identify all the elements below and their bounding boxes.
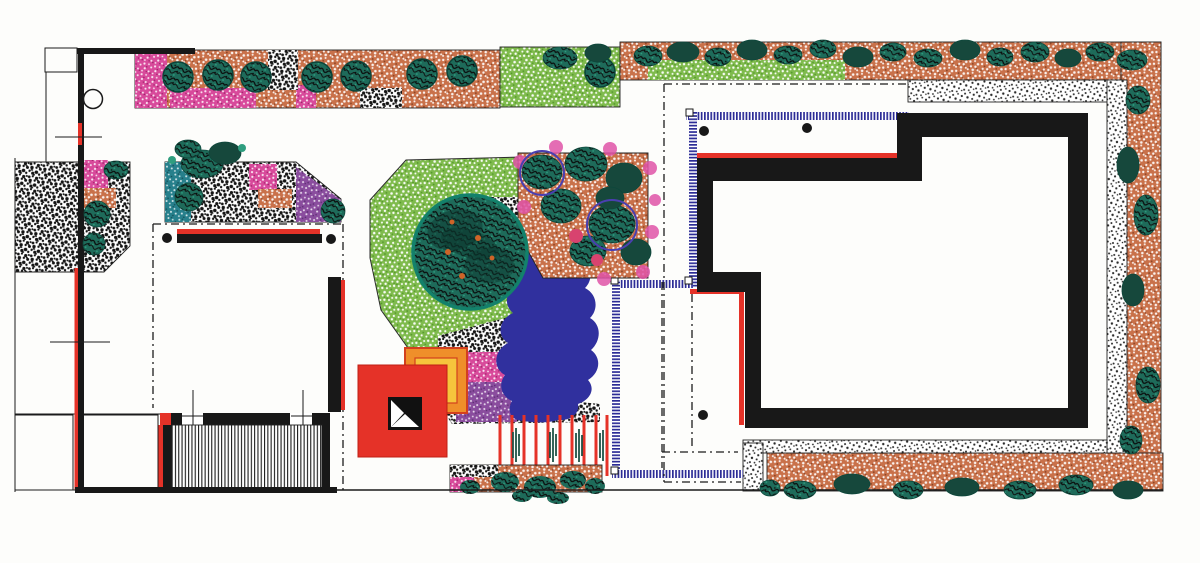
veranda-edge-top — [686, 112, 909, 120]
border-green-strip — [648, 60, 845, 80]
courtyard-edge-top — [612, 280, 693, 288]
garden-plan-drawing — [0, 0, 1200, 563]
pyramid-feature — [388, 397, 422, 430]
pergola-beam-red — [177, 229, 320, 234]
border-magenta-patch — [135, 50, 167, 108]
deck-side-wall — [163, 425, 172, 490]
garden-wall — [328, 277, 341, 412]
pergola-post — [162, 233, 172, 243]
border-dark-patch — [268, 50, 298, 90]
spine-wall-red-mark — [78, 123, 82, 145]
deck-side-red — [158, 425, 163, 490]
column-marker — [84, 90, 103, 109]
deck-side-wall — [322, 425, 330, 490]
veranda-red-edge — [697, 153, 907, 158]
veranda-post — [699, 126, 709, 136]
garden-plan-canvas — [0, 0, 1200, 563]
pergola-post — [326, 234, 336, 244]
garden-wall-red-face — [341, 280, 345, 410]
spine-wall — [78, 48, 84, 492]
top-boundary-wall — [77, 48, 195, 54]
spine-wall-red-face — [75, 268, 79, 490]
veranda-post — [802, 123, 812, 133]
south-boundary-wall — [75, 487, 337, 493]
courtyard-edge-bottom — [612, 470, 743, 478]
veranda-edge-left — [689, 112, 697, 287]
flower-dab — [569, 229, 583, 243]
flower-dab — [591, 254, 603, 266]
courtyard-red-edge — [739, 289, 744, 425]
specimen-tree — [413, 195, 527, 309]
courtyard-post — [698, 410, 708, 420]
deck-edge-red-cap — [160, 413, 171, 427]
pergola-beam — [177, 234, 322, 243]
timber-deck — [172, 425, 322, 490]
central-shrub-cluster — [513, 140, 661, 286]
courtyard-edge-left — [612, 280, 620, 478]
border-dark-patch — [360, 88, 402, 108]
